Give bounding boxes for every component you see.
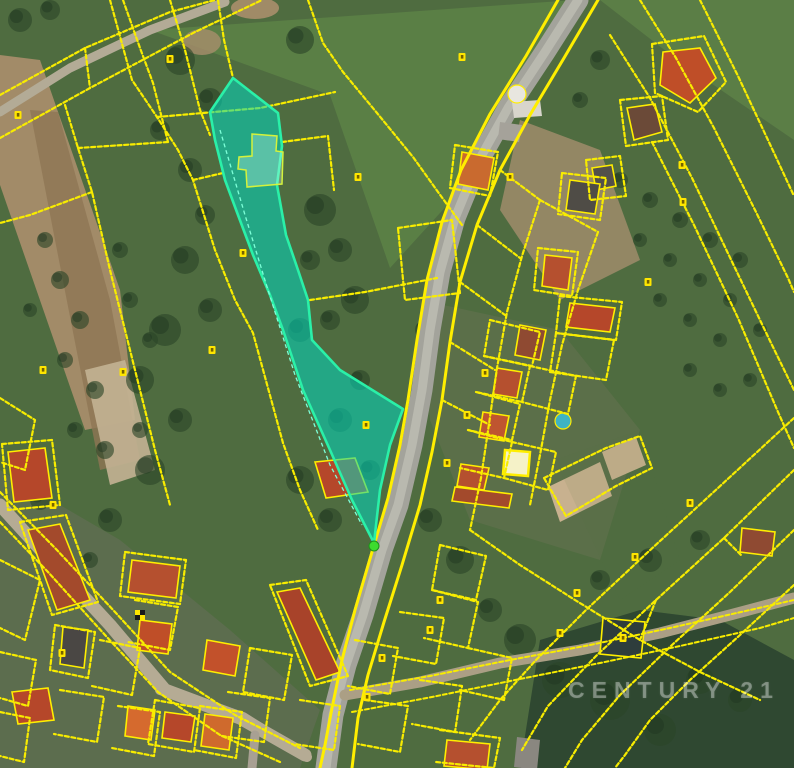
aerial-cadastral-map[interactable]: CENTURY 21 — [0, 0, 794, 768]
map-canvas[interactable] — [0, 0, 794, 768]
